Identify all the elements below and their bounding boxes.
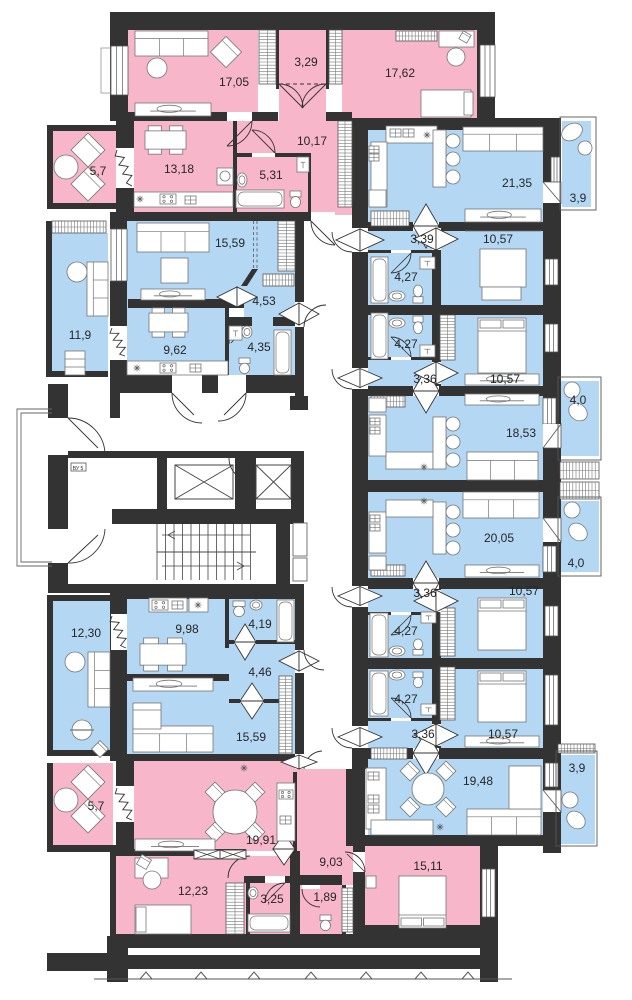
svg-text:4,27: 4,27 — [394, 624, 418, 638]
svg-text:17,05: 17,05 — [219, 75, 249, 89]
svg-text:9,98: 9,98 — [175, 622, 199, 636]
svg-text:21,35: 21,35 — [502, 176, 532, 190]
svg-text:5,31: 5,31 — [259, 168, 283, 182]
svg-text:4,0: 4,0 — [568, 556, 585, 570]
svg-text:10,17: 10,17 — [297, 134, 327, 148]
svg-text:3,36: 3,36 — [411, 727, 435, 741]
svg-text:4,27: 4,27 — [394, 270, 418, 284]
svg-text:10,57: 10,57 — [509, 584, 539, 598]
svg-text:4,27: 4,27 — [394, 337, 418, 351]
svg-text:4,53: 4,53 — [252, 294, 276, 308]
svg-text:9,62: 9,62 — [163, 343, 187, 357]
svg-text:17,62: 17,62 — [385, 66, 415, 80]
svg-text:19,91: 19,91 — [246, 833, 276, 847]
svg-text:15,11: 15,11 — [413, 859, 442, 873]
svg-text:5,7: 5,7 — [88, 799, 105, 813]
svg-text:18,53: 18,53 — [506, 426, 536, 440]
svg-text:12,23: 12,23 — [178, 884, 208, 898]
svg-text:15,59: 15,59 — [215, 236, 245, 250]
svg-text:4,46: 4,46 — [248, 665, 272, 679]
svg-text:12,30: 12,30 — [71, 626, 101, 640]
svg-text:9,03: 9,03 — [319, 855, 343, 869]
svg-text:3,25: 3,25 — [260, 892, 284, 906]
svg-text:3,9: 3,9 — [570, 191, 587, 205]
svg-text:15,59: 15,59 — [236, 730, 266, 744]
svg-text:13,18: 13,18 — [164, 162, 194, 176]
svg-text:10,57: 10,57 — [483, 232, 513, 246]
svg-text:20,05: 20,05 — [484, 531, 514, 545]
svg-text:3,9: 3,9 — [569, 761, 586, 775]
svg-text:ВУ 5: ВУ 5 — [73, 466, 84, 472]
svg-text:10,57: 10,57 — [490, 372, 520, 386]
svg-text:3,39: 3,39 — [410, 232, 434, 246]
svg-text:1,89: 1,89 — [313, 890, 337, 904]
svg-text:5,7: 5,7 — [90, 164, 107, 178]
svg-text:4,19: 4,19 — [248, 617, 272, 631]
svg-text:4,35: 4,35 — [247, 340, 271, 354]
svg-text:10,57: 10,57 — [488, 727, 518, 741]
svg-text:3,36: 3,36 — [413, 586, 437, 600]
svg-text:3,36: 3,36 — [413, 372, 437, 386]
svg-text:19,48: 19,48 — [463, 774, 493, 788]
svg-text:11,9: 11,9 — [69, 328, 92, 342]
svg-text:4,0: 4,0 — [570, 393, 587, 407]
svg-text:3,29: 3,29 — [294, 55, 318, 69]
svg-text:4,27: 4,27 — [394, 692, 418, 706]
